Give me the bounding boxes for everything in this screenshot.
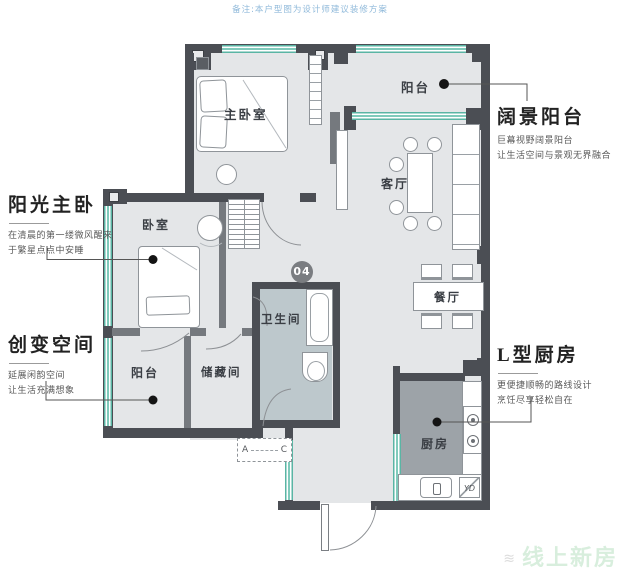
burner-icon: [467, 435, 479, 447]
pillow: [146, 295, 191, 316]
annotation-desc-line2: 烹饪尽享轻松自在: [497, 394, 617, 409]
window-balcony-top: [356, 45, 466, 53]
dining-chair: [421, 264, 442, 280]
wall-bottom-left: [103, 428, 263, 438]
wall-kitchen-topright: [463, 360, 490, 376]
annotation-divider: [9, 223, 49, 224]
burner-icon: [467, 414, 479, 426]
room-label-kitchen: 厨房: [421, 435, 449, 452]
stool: [427, 137, 442, 152]
wall-balcony-storage-divider: [184, 336, 191, 428]
room-label-bedroom: 卧室: [142, 216, 170, 233]
stove: [463, 406, 482, 454]
toilet-bowl: [307, 361, 325, 381]
stool: [403, 137, 418, 152]
dining-chair: [452, 313, 473, 329]
stool: [403, 216, 418, 231]
dining-chair: [421, 313, 442, 329]
bed: [138, 246, 200, 328]
hall-cabinet: [336, 130, 348, 210]
wall-master-bottom2: [300, 193, 316, 202]
ac-platform: A C: [237, 438, 292, 462]
unit-number-badge: 04: [291, 261, 313, 283]
stool: [389, 200, 404, 215]
annotation-l-kitchen: L型厨房 更便捷顺畅的路线设计 烹饪尽享轻松自在: [497, 340, 617, 409]
annotation-title: 阳光主卧: [8, 190, 128, 217]
room-label-bathroom: 卫生间: [261, 311, 302, 327]
floor-plan-page: 备注:本户型图为设计师建议装修方案: [0, 0, 620, 574]
annotation-desc-line1: 更便捷顺畅的路线设计: [497, 379, 617, 394]
ac-label-c: C: [281, 445, 287, 455]
wall-bathroom-bottom: [252, 420, 340, 428]
annotation-desc-line1: 巨幕视野阔景阳台: [497, 134, 617, 149]
wall-bathroom-right: [333, 282, 340, 428]
wall-left-master: [185, 53, 194, 202]
window-master-bedroom: [222, 45, 296, 53]
annotation-sunny-master: 阳光主卧 在清晨的第一缕微风醒来 于繁星点点中安睡: [8, 190, 128, 259]
annotation-divider: [9, 363, 49, 364]
bathtub-basin: [310, 293, 329, 342]
room-label-balcony-bottom: 阳台: [131, 364, 159, 381]
stool: [216, 164, 237, 185]
room-label-balcony-top: 阳台: [401, 77, 430, 96]
room-label-living-room: 客厅: [381, 175, 409, 192]
wall-entry-left: [278, 501, 320, 510]
annotation-title: L型厨房: [497, 340, 617, 367]
wash-basin: [197, 215, 223, 241]
floor-kitchen: [398, 381, 462, 474]
dining-chair: [452, 264, 473, 280]
annotation-title: 阔景阳台: [497, 102, 617, 129]
wardrobe: [309, 55, 322, 125]
wall-kitchen-top: [393, 373, 465, 381]
wall-bathroom-top: [252, 282, 336, 289]
annotation-desc-line1: 延展闲韵空间: [8, 369, 128, 384]
shelf-unit: [228, 199, 260, 249]
wall-pillar-top2: [334, 44, 348, 64]
annotation-creative-space: 创变空间 延展闲韵空间 让生活充满想象: [8, 330, 128, 399]
window-balcony-living: [352, 112, 466, 120]
annotation-desc-line2: 让生活空间与景观无界融合: [497, 149, 617, 164]
kitchen-sink: [420, 477, 452, 498]
annotation-wide-balcony: 阔景阳台 巨幕视野阔景阳台 让生活空间与景观无界融合: [497, 102, 617, 164]
watermark-text: 线上新房: [522, 546, 618, 571]
nightstand: [196, 57, 209, 70]
faucet-icon: [433, 483, 441, 495]
annotation-divider: [498, 373, 538, 374]
wall-bottom-right: [393, 501, 490, 510]
stool: [389, 157, 404, 172]
annotation-desc-line2: 让生活充满想象: [8, 384, 128, 399]
bathtub: [306, 289, 333, 346]
annotation-title: 创变空间: [8, 330, 128, 357]
washer-box: YD: [459, 477, 480, 498]
stool: [427, 216, 442, 231]
room-label-storage: 储藏间: [201, 364, 242, 380]
shelf-divider: [244, 200, 245, 248]
annotation-desc-line1: 在清晨的第一缕微风醒来: [8, 229, 128, 244]
toilet: [302, 352, 328, 382]
ac-label-a: A: [242, 445, 248, 455]
watermark: ≋线上新房: [503, 540, 618, 572]
entry-door-leaf: [321, 504, 329, 551]
wall-balcony-top2: [190, 328, 206, 336]
room-label-dining-room: 餐厅: [434, 289, 461, 305]
annotation-desc-line2: 于繁星点点中安睡: [8, 244, 128, 259]
room-label-master-bedroom: 主卧室: [224, 104, 268, 123]
sofa: [452, 124, 480, 250]
living-table: [407, 153, 433, 213]
wall-bathroom-left: [252, 282, 260, 428]
watermark-logo-icon: ≋: [503, 551, 517, 567]
ac-dash-line: [251, 450, 278, 451]
disclaimer-note: 备注:本户型图为设计师建议装修方案: [0, 3, 620, 15]
